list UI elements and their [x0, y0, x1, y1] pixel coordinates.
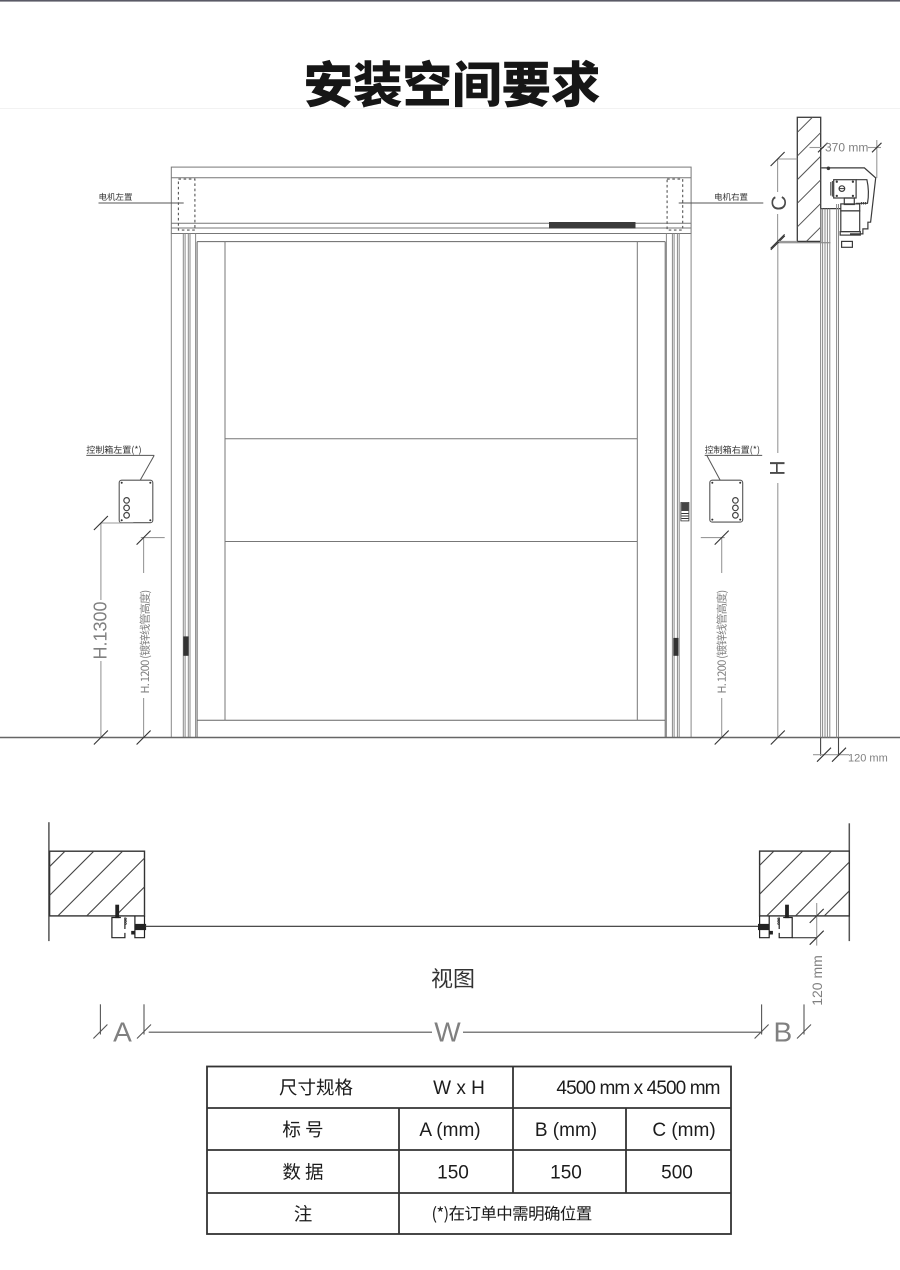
- svg-text:370 mm: 370 mm: [825, 140, 868, 154]
- svg-text:B: B: [773, 1017, 792, 1048]
- svg-text:A: A: [113, 1017, 132, 1048]
- svg-text:4500 mm x 4500 mm: 4500 mm x 4500 mm: [556, 1078, 719, 1099]
- svg-text:W x H: W x H: [433, 1078, 485, 1099]
- svg-text:150: 150: [550, 1163, 582, 1184]
- svg-text:C: C: [768, 195, 791, 210]
- svg-text:150: 150: [437, 1163, 469, 1184]
- svg-text:W: W: [434, 1017, 461, 1048]
- svg-text:120 mm: 120 mm: [809, 955, 825, 1006]
- svg-text:B (mm): B (mm): [535, 1120, 597, 1141]
- svg-text:H: H: [767, 460, 790, 475]
- svg-text:H.1300: H.1300: [91, 601, 111, 659]
- svg-text:C (mm): C (mm): [652, 1120, 715, 1141]
- svg-text:A (mm): A (mm): [419, 1120, 480, 1141]
- svg-text:120 mm: 120 mm: [848, 753, 888, 765]
- svg-text:500: 500: [661, 1163, 693, 1184]
